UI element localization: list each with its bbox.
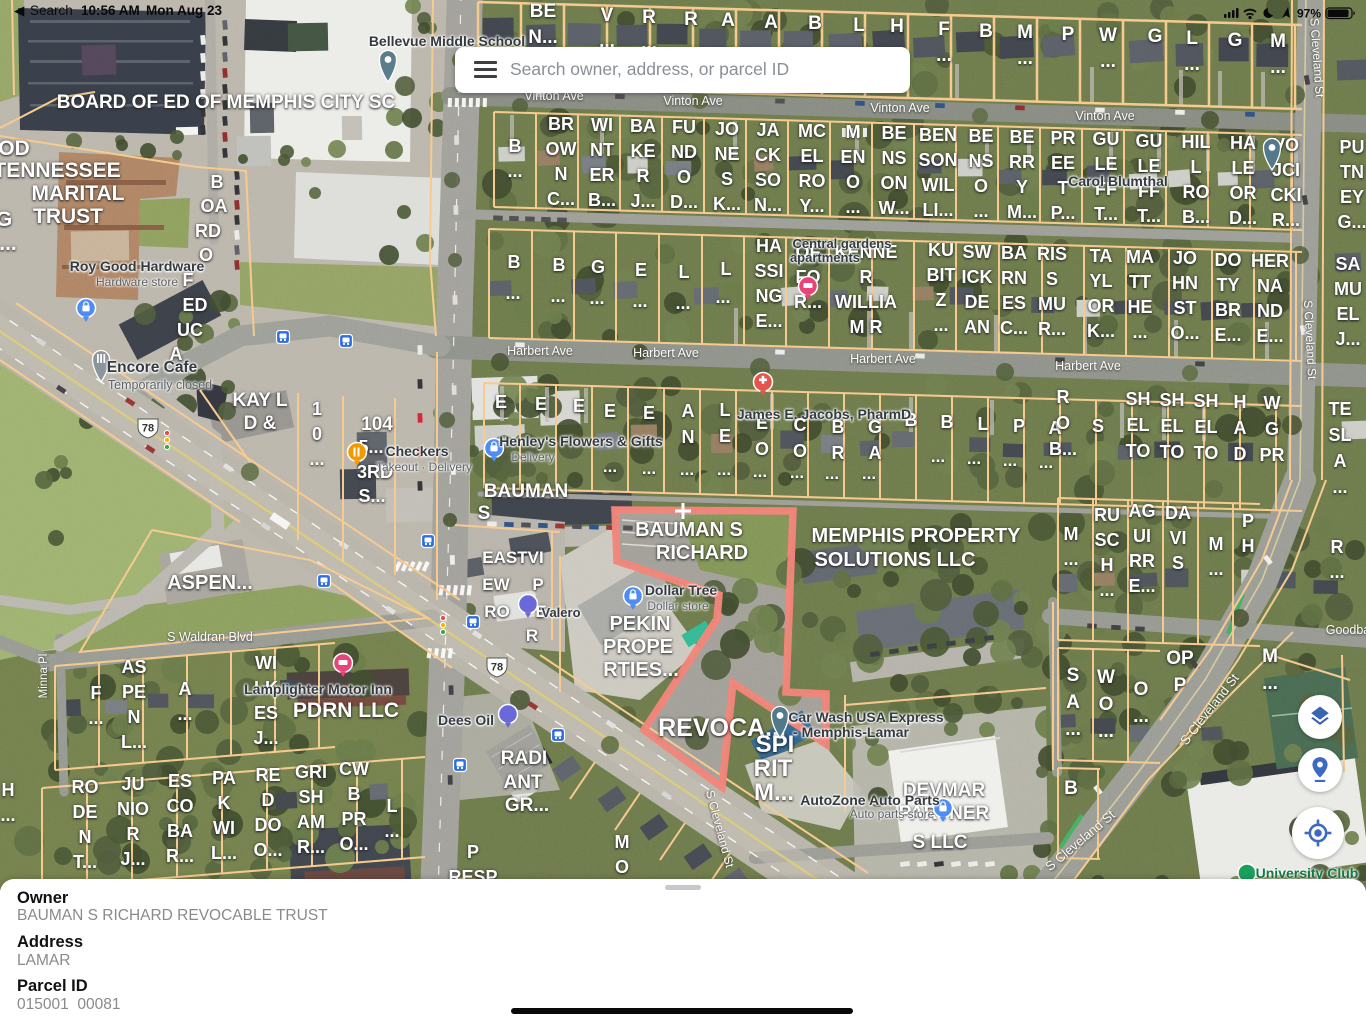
- svg-text:NA: NA: [1257, 276, 1283, 296]
- svg-text:MU: MU: [1334, 279, 1362, 299]
- svg-text:MU: MU: [1038, 294, 1066, 314]
- svg-text:O: O: [1056, 413, 1070, 433]
- svg-text:L: L: [1191, 157, 1202, 177]
- svg-text:OA: OA: [201, 196, 228, 216]
- svg-text:PR: PR: [1050, 128, 1075, 148]
- svg-text:HA: HA: [756, 236, 782, 256]
- svg-text:E...: E...: [755, 311, 782, 331]
- svg-text:ND: ND: [671, 142, 697, 162]
- svg-text:BE: BE: [1009, 127, 1034, 147]
- svg-text:PR: PR: [341, 809, 366, 829]
- svg-text:BE: BE: [968, 126, 993, 146]
- svg-text:HE: HE: [1127, 297, 1152, 317]
- svg-text:ON: ON: [881, 173, 908, 193]
- svg-text:PDRN LLC: PDRN LLC: [293, 699, 399, 722]
- svg-text:R: R: [526, 626, 538, 645]
- svg-text:M: M: [615, 832, 630, 852]
- svg-text:YL: YL: [1089, 271, 1112, 291]
- svg-text:PROPE: PROPE: [603, 636, 673, 658]
- svg-text:B: B: [348, 784, 361, 804]
- svg-text:TENNESSEE: TENNESSEE: [0, 159, 121, 182]
- svg-text:...: ...: [1003, 451, 1017, 470]
- svg-text:E: E: [573, 396, 585, 416]
- svg-text:BOARD OF ED OF MEMPHIS CITY SC: BOARD OF ED OF MEMPHIS CITY SC: [57, 92, 396, 113]
- svg-text:K...: K...: [1087, 321, 1115, 341]
- svg-text:LE: LE: [1094, 154, 1117, 174]
- svg-text:A: A: [1334, 451, 1347, 471]
- svg-text:G: G: [1265, 419, 1279, 439]
- svg-text:S Waldran Blvd: S Waldran Blvd: [167, 630, 253, 644]
- svg-text:HIL: HIL: [1182, 132, 1211, 152]
- svg-text:DO: DO: [255, 815, 282, 835]
- svg-text:Goodba: Goodba: [1326, 623, 1366, 637]
- svg-text:G: G: [0, 208, 12, 231]
- svg-text:B: B: [1064, 778, 1078, 799]
- svg-text:SO: SO: [755, 170, 781, 190]
- svg-text:...: ...: [309, 449, 324, 469]
- svg-text:B: B: [508, 252, 521, 272]
- svg-text:L: L: [679, 262, 690, 282]
- svg-text:...: ...: [715, 287, 730, 307]
- svg-text:E: E: [719, 426, 731, 446]
- svg-text:D...: D...: [1229, 208, 1257, 228]
- svg-text:SOLUTIONS LLC: SOLUTIONS LLC: [814, 549, 975, 571]
- svg-text:Hardware store: Hardware store: [96, 275, 178, 289]
- svg-text:RU: RU: [1094, 505, 1120, 525]
- svg-text:K...: K...: [713, 194, 741, 214]
- svg-text:E: E: [643, 403, 655, 423]
- svg-text:James E. Jacobs, PharmD: James E. Jacobs, PharmD: [737, 406, 911, 422]
- svg-text:PEKIN: PEKIN: [609, 613, 670, 635]
- svg-text:J...: J...: [630, 191, 655, 211]
- svg-text:Carol Blumthal: Carol Blumthal: [1068, 173, 1168, 189]
- svg-text:Car Wash USA Express: Car Wash USA Express: [788, 709, 944, 725]
- svg-text:G: G: [1148, 26, 1163, 47]
- svg-text:R: R: [832, 443, 845, 463]
- svg-text:SH: SH: [298, 787, 323, 807]
- svg-text:SH: SH: [1193, 391, 1218, 411]
- svg-text:RIS: RIS: [1037, 244, 1067, 264]
- svg-text:TO: TO: [1194, 443, 1219, 463]
- svg-text:CKI: CKI: [1271, 185, 1302, 205]
- svg-text:Encore Cafe: Encore Cafe: [107, 359, 198, 376]
- svg-text:...: ...: [1329, 562, 1344, 582]
- svg-text:J...: J...: [120, 849, 145, 869]
- svg-text:LE: LE: [1231, 158, 1254, 178]
- svg-text:PA: PA: [212, 768, 236, 788]
- svg-text:O...: O...: [1170, 323, 1199, 343]
- svg-text:C...: C...: [547, 189, 575, 209]
- svg-text:ASPEN...: ASPEN...: [167, 572, 253, 594]
- svg-text:RO: RO: [799, 171, 826, 191]
- svg-text:ER: ER: [589, 165, 614, 185]
- svg-text:...: ...: [505, 283, 520, 303]
- svg-text:SH: SH: [1125, 389, 1150, 409]
- svg-text:R: R: [637, 166, 650, 186]
- svg-text:N: N: [128, 707, 141, 727]
- svg-text:R: R: [127, 824, 140, 844]
- svg-text:Harbert Ave: Harbert Ave: [1055, 359, 1121, 373]
- svg-text:S: S: [1046, 269, 1058, 289]
- svg-text:Valero: Valero: [541, 605, 580, 620]
- svg-text:Takeout · Delivery: Takeout · Delivery: [376, 460, 472, 474]
- svg-text:Dollar store: Dollar store: [647, 599, 709, 613]
- svg-text:Harbert Ave: Harbert Ave: [850, 352, 916, 366]
- svg-text:Y...: Y...: [799, 196, 824, 216]
- svg-text:M...: M...: [1007, 202, 1037, 222]
- svg-text:G: G: [591, 257, 605, 277]
- svg-text:JO: JO: [1173, 248, 1197, 268]
- svg-text:S: S: [1092, 416, 1104, 436]
- svg-text:EL: EL: [800, 146, 823, 166]
- svg-text:BR: BR: [1215, 300, 1241, 320]
- svg-text:M: M: [1262, 646, 1278, 667]
- svg-text:Y: Y: [1016, 177, 1028, 197]
- svg-text:OD: OD: [0, 137, 30, 160]
- svg-text:GRI: GRI: [295, 762, 327, 782]
- svg-text:H: H: [1101, 555, 1114, 575]
- svg-text:...: ...: [936, 45, 952, 66]
- svg-text:...: ...: [1098, 721, 1114, 742]
- svg-text:H: H: [1234, 392, 1247, 412]
- svg-text:ST: ST: [1173, 298, 1196, 318]
- svg-text:SC: SC: [1094, 530, 1119, 550]
- svg-text:...: ...: [603, 457, 617, 476]
- svg-text:P: P: [1174, 675, 1187, 696]
- svg-text:E: E: [635, 260, 647, 280]
- svg-text:RO: RO: [72, 777, 99, 797]
- svg-text:...: ...: [931, 447, 945, 466]
- svg-text:RN: RN: [1001, 268, 1027, 288]
- svg-text:...: ...: [1039, 453, 1053, 472]
- svg-text:E: E: [535, 394, 547, 414]
- svg-text:A: A: [682, 401, 695, 421]
- svg-text:O: O: [974, 176, 988, 196]
- svg-text:...: ...: [753, 462, 767, 481]
- svg-text:A: A: [1234, 418, 1247, 438]
- svg-text:F: F: [91, 683, 102, 703]
- svg-text:...: ...: [1100, 51, 1116, 72]
- svg-text:D: D: [262, 790, 275, 810]
- svg-text:S: S: [1172, 553, 1184, 573]
- svg-text:...: ...: [1133, 706, 1149, 727]
- svg-text:BAUMAN: BAUMAN: [484, 481, 568, 502]
- svg-text:...: ...: [507, 161, 522, 181]
- svg-text:RADI: RADI: [501, 748, 547, 769]
- svg-text:BEN: BEN: [919, 125, 957, 145]
- svg-text:...: ...: [642, 459, 656, 478]
- svg-text:SW: SW: [963, 242, 992, 262]
- svg-text:R...: R...: [1038, 319, 1066, 339]
- svg-text:H: H: [2, 780, 15, 800]
- svg-text:BR: BR: [548, 114, 574, 134]
- svg-text:DE: DE: [72, 802, 97, 822]
- svg-text:R...: R...: [297, 837, 325, 857]
- svg-text:- Memphis-Lamar: - Memphis-Lamar: [793, 724, 909, 740]
- svg-text:LI...: LI...: [923, 200, 954, 220]
- svg-text:EW: EW: [482, 575, 510, 594]
- svg-text:S: S: [721, 169, 733, 189]
- svg-text:SON: SON: [918, 150, 957, 170]
- svg-text:CK: CK: [755, 145, 781, 165]
- svg-text:...: ...: [1099, 580, 1114, 600]
- svg-text:NG: NG: [756, 286, 783, 306]
- svg-text:R: R: [1331, 537, 1344, 557]
- svg-text:L...: L...: [121, 732, 147, 752]
- svg-text:ED: ED: [182, 295, 207, 315]
- svg-text:O...: O...: [339, 834, 368, 854]
- svg-text:NS: NS: [968, 151, 993, 171]
- svg-text:E: E: [495, 392, 507, 412]
- svg-text:L: L: [1186, 28, 1198, 49]
- svg-text:O: O: [615, 857, 629, 877]
- svg-text:L: L: [720, 400, 731, 420]
- svg-text:B: B: [509, 136, 522, 156]
- svg-text:M R: M R: [850, 317, 883, 337]
- svg-text:O...: O...: [253, 840, 282, 860]
- svg-text:W: W: [1264, 393, 1281, 413]
- svg-text:B: B: [979, 21, 993, 42]
- svg-text:Auto parts store: Auto parts store: [850, 807, 935, 821]
- svg-text:O: O: [755, 439, 769, 459]
- svg-text:...: ...: [550, 286, 565, 306]
- svg-text:Delivery: Delivery: [511, 450, 554, 464]
- svg-text:E: E: [604, 401, 616, 421]
- svg-text:Dollar Tree: Dollar Tree: [645, 582, 718, 598]
- svg-text:EASTVI: EASTVI: [482, 548, 543, 567]
- svg-text:T...: T...: [1137, 206, 1161, 226]
- svg-text:OR: OR: [1088, 296, 1115, 316]
- svg-text:EN: EN: [840, 147, 865, 167]
- svg-text:G...: G...: [1337, 212, 1366, 232]
- svg-text:P: P: [467, 842, 479, 862]
- svg-text:CW: CW: [339, 759, 369, 779]
- svg-text:...: ...: [1065, 719, 1081, 740]
- svg-text:D &: D &: [244, 413, 277, 434]
- svg-text:AS: AS: [121, 657, 146, 677]
- svg-text:...: ...: [933, 315, 948, 335]
- svg-text:NT: NT: [590, 140, 614, 160]
- svg-text:DA: DA: [1165, 503, 1191, 523]
- svg-text:78: 78: [142, 423, 154, 435]
- svg-text:VI: VI: [1169, 528, 1186, 548]
- svg-text:N: N: [682, 427, 695, 447]
- svg-text:AN: AN: [964, 317, 990, 337]
- svg-text:Henley's Flowers & Gifts: Henley's Flowers & Gifts: [499, 433, 663, 449]
- svg-text:B...: B...: [1182, 207, 1210, 227]
- svg-text:B: B: [211, 172, 224, 192]
- svg-text:M: M: [1064, 524, 1079, 544]
- svg-text:KU: KU: [928, 240, 954, 260]
- svg-text:...: ...: [1063, 549, 1078, 569]
- svg-text:EL: EL: [1160, 416, 1183, 436]
- svg-text:E...: E...: [1214, 325, 1241, 345]
- svg-text:R...: R...: [1272, 210, 1300, 230]
- svg-text:...: ...: [790, 463, 804, 482]
- svg-text:97%: 97%: [1297, 7, 1321, 21]
- svg-text:Central gardens: Central gardens: [793, 236, 892, 251]
- svg-text:EL: EL: [1194, 417, 1217, 437]
- svg-text:HER: HER: [1251, 251, 1289, 271]
- svg-text:FU: FU: [672, 117, 696, 137]
- svg-text:Vinton Ave: Vinton Ave: [870, 101, 929, 115]
- svg-text:Minna Pl: Minna Pl: [38, 654, 50, 699]
- svg-text:...: ...: [862, 464, 876, 483]
- svg-text:...: ...: [1208, 559, 1223, 579]
- svg-text:0: 0: [312, 424, 322, 444]
- svg-text:W: W: [1099, 25, 1117, 46]
- svg-text:GU: GU: [1093, 129, 1120, 149]
- svg-text:B: B: [553, 255, 566, 275]
- svg-text:WI: WI: [213, 818, 235, 838]
- svg-text:B: B: [941, 412, 954, 432]
- svg-text:ND: ND: [1257, 301, 1283, 321]
- svg-text:S...: S...: [358, 486, 385, 506]
- svg-text:TRUST: TRUST: [33, 205, 103, 228]
- svg-text:L: L: [721, 259, 732, 279]
- svg-text:DO: DO: [1215, 250, 1242, 270]
- svg-text:...: ...: [1270, 57, 1286, 78]
- svg-text:EL: EL: [1126, 415, 1149, 435]
- svg-text:RD: RD: [195, 221, 221, 241]
- svg-text:SH: SH: [1159, 390, 1184, 410]
- svg-text:P: P: [1062, 24, 1075, 45]
- svg-text:NIO: NIO: [117, 799, 149, 819]
- svg-text:...: ...: [680, 460, 694, 479]
- svg-text:78: 78: [491, 662, 503, 674]
- svg-text:Harbert Ave: Harbert Ave: [507, 344, 573, 358]
- svg-text:RR: RR: [1129, 551, 1155, 571]
- svg-text:R...: R...: [166, 846, 194, 866]
- svg-text:...: ...: [632, 291, 647, 311]
- svg-text:WI: WI: [255, 653, 277, 673]
- svg-text:WI: WI: [591, 115, 613, 135]
- svg-text:Vinton Ave: Vinton Ave: [663, 94, 722, 108]
- svg-text:1: 1: [312, 399, 322, 419]
- svg-text:EE: EE: [1051, 153, 1075, 173]
- svg-text:PR: PR: [1259, 445, 1284, 465]
- svg-text:OP: OP: [1166, 648, 1194, 669]
- svg-text:A: A: [179, 679, 192, 699]
- svg-text:T...: T...: [1094, 204, 1118, 224]
- svg-text:WIL: WIL: [922, 175, 955, 195]
- svg-text:TN: TN: [1340, 162, 1364, 182]
- svg-text:J...: J...: [1335, 329, 1360, 349]
- svg-text:BA: BA: [167, 821, 193, 841]
- svg-text:AutoZone Auto Parts: AutoZone Auto Parts: [800, 792, 940, 808]
- svg-text:Temporarily closed: Temporarily closed: [108, 378, 212, 392]
- svg-text:H: H: [1242, 536, 1255, 556]
- svg-text:TO: TO: [1126, 441, 1151, 461]
- svg-text:...: ...: [967, 449, 981, 468]
- svg-text:...: ...: [589, 288, 604, 308]
- svg-text:TA: TA: [1090, 246, 1113, 266]
- svg-text:...: ...: [675, 293, 690, 313]
- svg-text:N...: N...: [528, 27, 558, 48]
- svg-text:P: P: [1242, 511, 1254, 531]
- svg-text:R: R: [1057, 387, 1070, 407]
- svg-text:S: S: [1067, 665, 1080, 686]
- svg-text:...: ...: [973, 201, 988, 221]
- svg-text:GU: GU: [1136, 131, 1163, 151]
- svg-text:SL: SL: [1328, 425, 1351, 445]
- svg-text:...: ...: [177, 704, 192, 724]
- svg-text:...: ...: [1132, 322, 1147, 342]
- svg-text:C...: C...: [1000, 318, 1028, 338]
- svg-text:L: L: [978, 414, 989, 434]
- svg-text:Dees Oil: Dees Oil: [438, 712, 494, 728]
- svg-text:MC: MC: [798, 121, 826, 141]
- svg-text:BAUMAN S: BAUMAN S: [635, 519, 743, 541]
- svg-text:ES: ES: [168, 771, 192, 791]
- svg-text:...: ...: [0, 232, 17, 255]
- svg-text:SA: SA: [1335, 254, 1360, 274]
- svg-text:N: N: [555, 164, 568, 184]
- svg-text:...: ...: [384, 821, 399, 841]
- svg-text:T: T: [1058, 178, 1069, 198]
- svg-text:RIT: RIT: [754, 755, 793, 782]
- svg-text:Roy Good Hardware: Roy Good Hardware: [70, 258, 205, 274]
- svg-text:RICHARD: RICHARD: [656, 542, 748, 564]
- svg-text:A: A: [1066, 692, 1080, 713]
- svg-text:UI: UI: [1133, 526, 1151, 546]
- svg-text:N...: N...: [754, 195, 782, 215]
- svg-text:RO: RO: [1183, 182, 1210, 202]
- svg-text:...: ...: [825, 464, 839, 483]
- svg-text:SSI: SSI: [754, 261, 783, 281]
- svg-text:M: M: [1209, 534, 1224, 554]
- svg-text:TY: TY: [1216, 275, 1239, 295]
- svg-text:T...: T...: [73, 852, 97, 872]
- svg-text:104: 104: [361, 414, 393, 435]
- svg-text:B...: B...: [588, 190, 616, 210]
- svg-text:...: ...: [1184, 54, 1200, 75]
- svg-text:S: S: [478, 503, 491, 524]
- svg-text:ICK: ICK: [962, 267, 993, 287]
- svg-text:P...: P...: [1051, 203, 1076, 223]
- svg-text:PU: PU: [1339, 137, 1364, 157]
- svg-text:BA: BA: [630, 116, 656, 136]
- svg-text:BIT: BIT: [927, 265, 956, 285]
- svg-text:Checkers: Checkers: [385, 443, 448, 459]
- svg-text:O: O: [1099, 694, 1114, 715]
- svg-text:...: ...: [1017, 48, 1033, 69]
- svg-text:HA: HA: [1230, 133, 1256, 153]
- svg-text:L...: L...: [211, 843, 237, 863]
- svg-text:OW: OW: [546, 139, 577, 159]
- svg-text:GR...: GR...: [505, 795, 549, 816]
- svg-text:EL: EL: [1336, 304, 1359, 324]
- svg-text:ES: ES: [1002, 293, 1026, 313]
- svg-text:JA: JA: [756, 120, 779, 140]
- svg-text:W: W: [1097, 667, 1115, 688]
- svg-text:O: O: [846, 172, 860, 192]
- svg-text:...: ...: [717, 460, 731, 479]
- svg-text:BE: BE: [881, 123, 906, 143]
- svg-text:M: M: [846, 122, 861, 142]
- svg-text:DE: DE: [964, 292, 989, 312]
- svg-text:KAY L: KAY L: [233, 390, 288, 411]
- svg-text:NE: NE: [714, 144, 739, 164]
- svg-text:O: O: [677, 167, 691, 187]
- svg-text:M: M: [1270, 31, 1286, 52]
- svg-text:E...: E...: [1128, 576, 1155, 596]
- svg-text:L: L: [387, 796, 398, 816]
- svg-text:EY: EY: [1340, 187, 1364, 207]
- svg-text:P: P: [532, 575, 543, 594]
- svg-text:ANT: ANT: [503, 772, 542, 793]
- svg-text:UC: UC: [177, 320, 203, 340]
